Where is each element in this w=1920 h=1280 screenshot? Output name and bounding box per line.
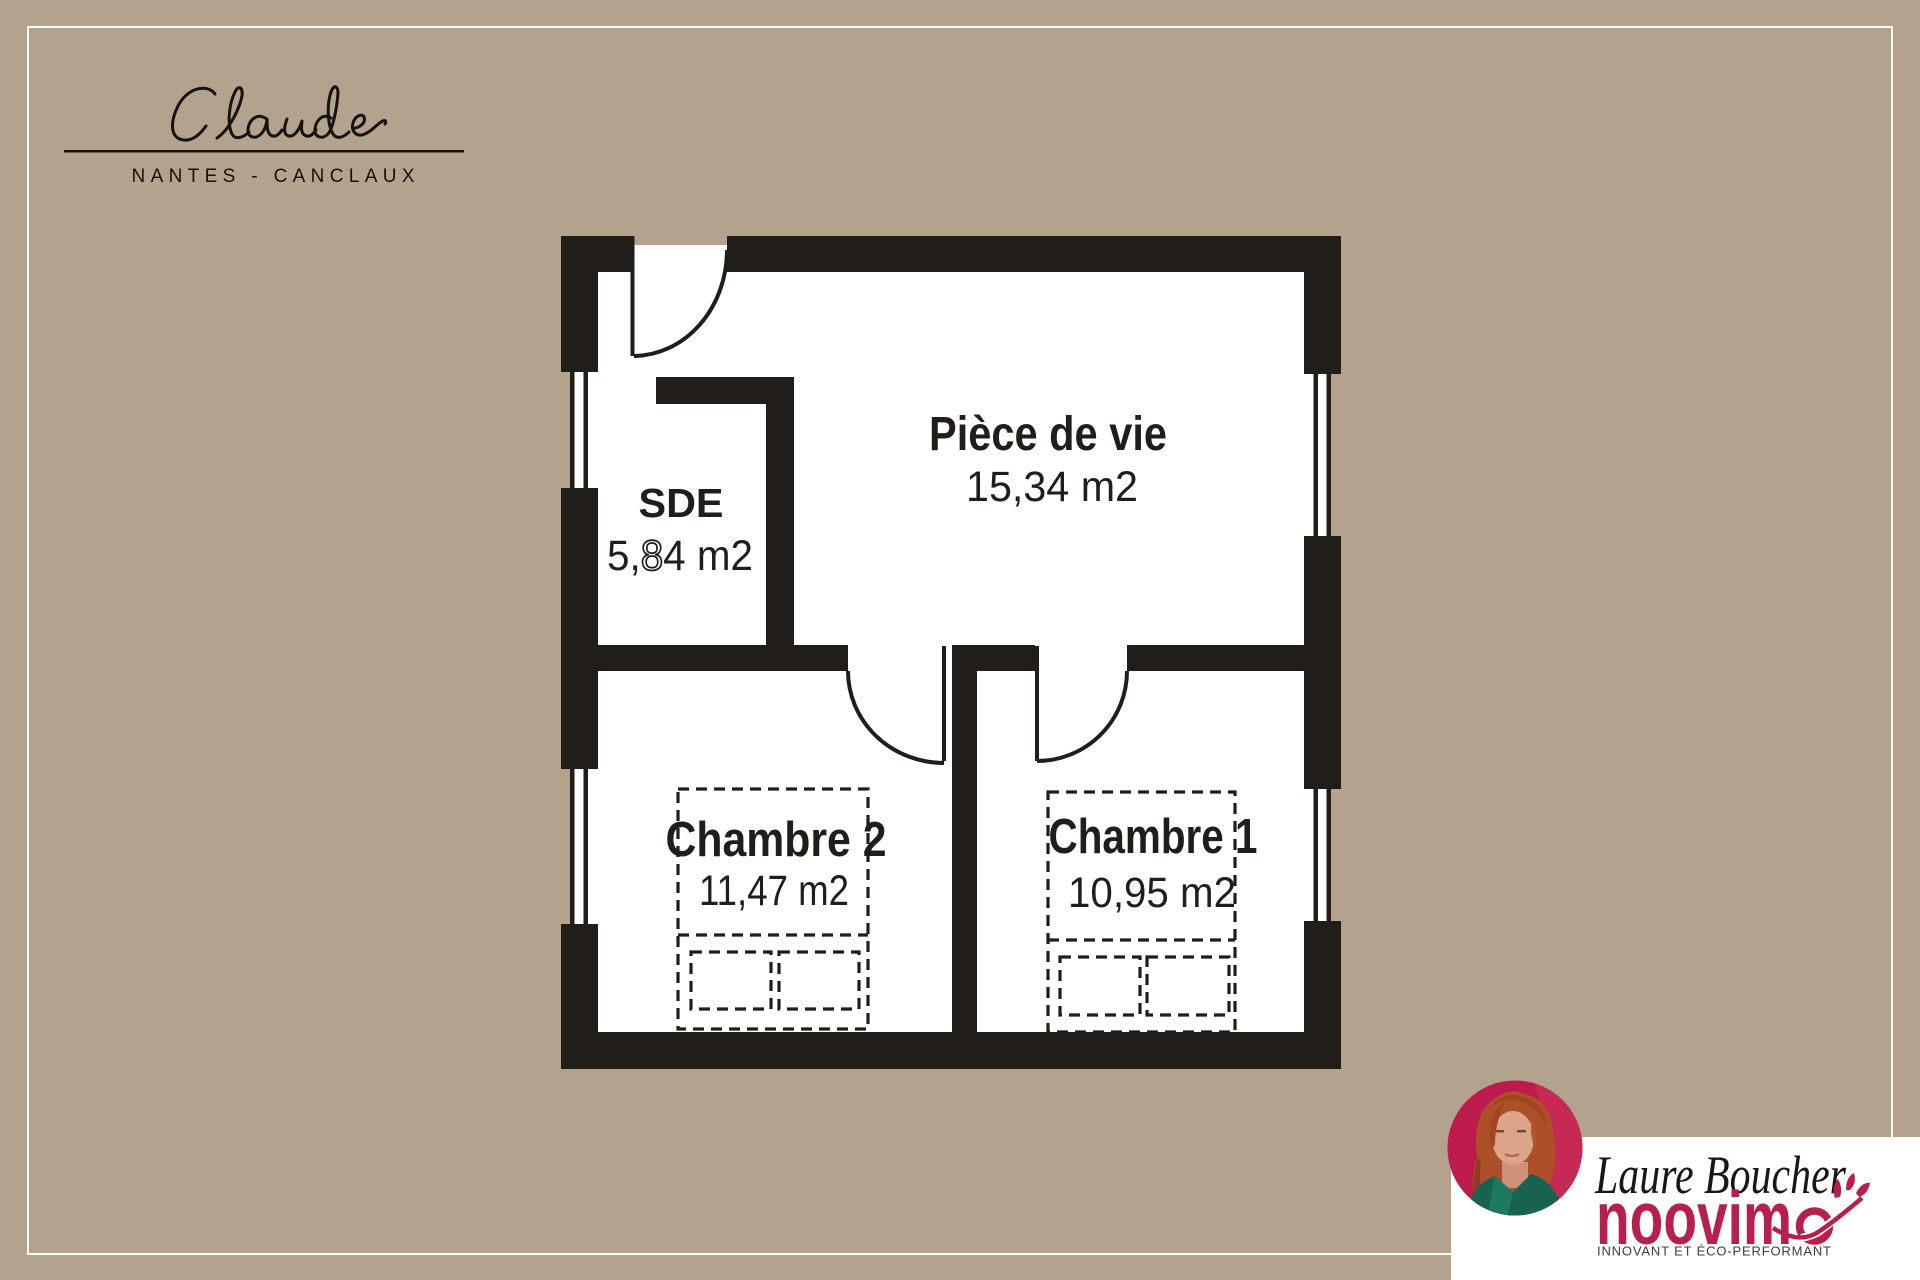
svg-text:SDE: SDE bbox=[639, 480, 724, 526]
svg-text:Chambre 2: Chambre 2 bbox=[666, 813, 887, 867]
svg-text:11,47 m2: 11,47 m2 bbox=[699, 867, 849, 915]
svg-text:15,34 m2: 15,34 m2 bbox=[966, 464, 1138, 511]
svg-text:Chambre 1: Chambre 1 bbox=[1049, 810, 1258, 864]
svg-text:5,84 m2: 5,84 m2 bbox=[607, 532, 753, 580]
svg-text:INNOVANT ET ÉCO-PERFORMANT: INNOVANT ET ÉCO-PERFORMANT bbox=[1597, 1244, 1831, 1259]
svg-text:Pièce de vie: Pièce de vie bbox=[929, 408, 1167, 461]
svg-text:10,95 m2: 10,95 m2 bbox=[1068, 869, 1236, 917]
